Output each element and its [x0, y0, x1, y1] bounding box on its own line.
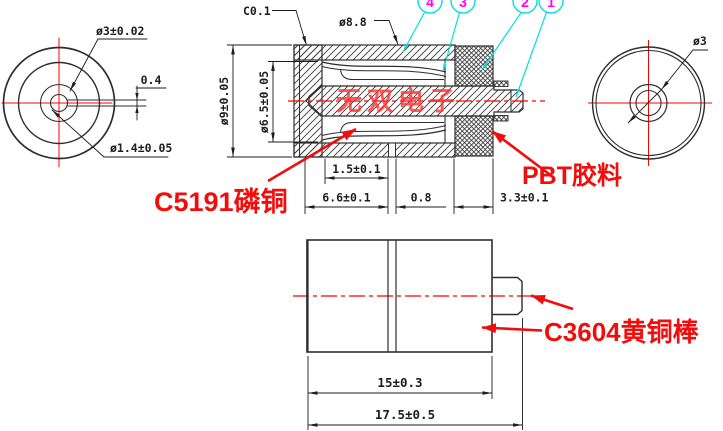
right-view-centerlines [588, 40, 712, 166]
leader-right-pin-dia-2 [628, 90, 662, 124]
svg-text:2: 2 [521, 0, 529, 10]
engineering-drawing-page: 0.4 ø3±0.02 ø1.4±0.05 [0, 0, 723, 431]
leader-shell-outer [374, 21, 398, 45]
balloon-4: 4 [403, 0, 442, 52]
pbt-tab-top [494, 81, 508, 87]
slot-gap [389, 144, 396, 157]
dim-slot-pos-text: 1.5±0.1 [332, 162, 381, 176]
arrow-brass-pin [531, 296, 573, 310]
dim-slot-width-text: 0.4 [141, 73, 162, 87]
pbt-tab-bottom [494, 116, 508, 122]
leader-outer-dia [70, 39, 147, 91]
left-end-view: 0.4 ø3±0.02 ø1.4±0.05 [2, 24, 172, 167]
svg-text:3: 3 [459, 0, 467, 10]
dim-outer-dia-text: ø3±0.02 [96, 24, 144, 38]
dim-front-len-text: 6.6±0.1 [322, 191, 371, 205]
dim-pin-dia-text: ø1.4±0.05 [110, 141, 172, 155]
svg-text:4: 4 [426, 0, 434, 10]
dim-shell-outer-text: ø8.8 [339, 15, 367, 29]
balloon-2-leader [482, 13, 521, 70]
label-spring-material: C5191磷铜 [154, 187, 288, 217]
dim-pbt-len-text: 3.3±0.1 [500, 191, 549, 205]
spring-contact-top [322, 62, 446, 80]
section-view: 无双电子 [288, 45, 545, 157]
arrow-brass-body [482, 328, 542, 331]
svg-text:1: 1 [547, 0, 555, 10]
pbt-block-top [455, 46, 493, 86]
leader-chamfer [272, 11, 307, 46]
dim-slot-width-lines [136, 86, 166, 120]
dim-slot-text: 0.8 [411, 191, 432, 205]
watermark-text: 无双电子 [336, 86, 460, 116]
right-end-view: ø3 [588, 34, 712, 166]
bottom-outside-view: 15±0.3 17.5±0.5 C3604黄铜棒 [293, 240, 700, 430]
dim-bore-dia-text: ø6.5±0.05 [257, 71, 271, 133]
dim-body-len-text: 15±0.3 [377, 375, 422, 390]
dim-chamfer-text: C0.1 [243, 4, 271, 18]
label-brass-material: C3604黄铜棒 [544, 317, 700, 347]
balloon-1-leader [516, 12, 547, 97]
pbt-block-bottom [455, 116, 493, 156]
dim-right-pin-dia-text: ø3 [693, 34, 707, 48]
dim-body-dia-text: ø9±0.05 [217, 77, 231, 126]
dim-total-len-text: 17.5±0.5 [375, 407, 435, 422]
drawing-canvas: 0.4 ø3±0.02 ø1.4±0.05 [0, 0, 723, 431]
balloon-1: 1 [516, 0, 563, 97]
